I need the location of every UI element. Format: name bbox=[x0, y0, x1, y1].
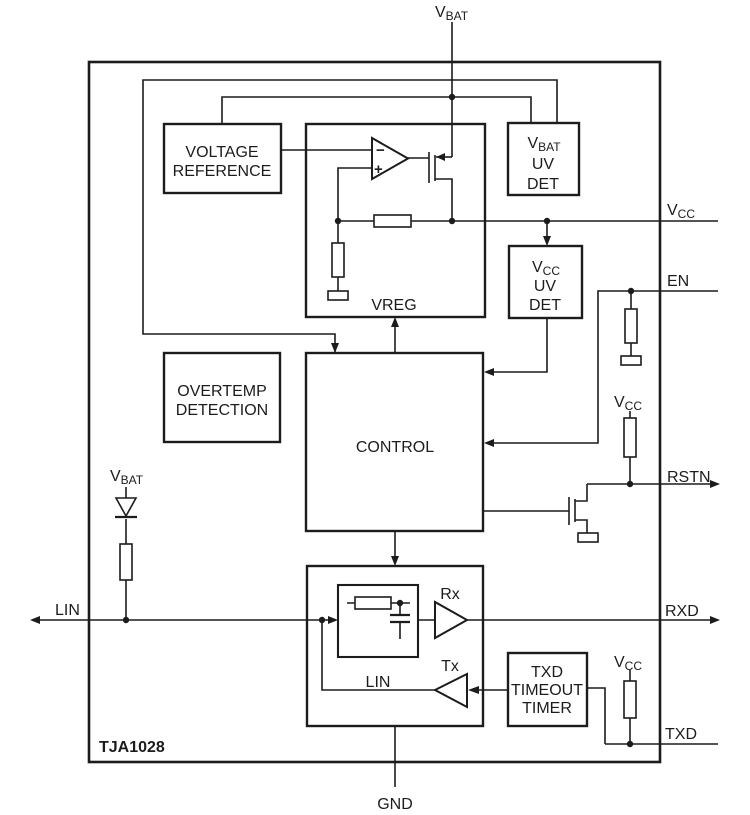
txd-timer-label-3: TIMER bbox=[522, 700, 572, 717]
lin-pullup-resistor bbox=[120, 544, 132, 580]
txd-pullup-vcc-label: VCC bbox=[614, 654, 642, 673]
junction-txd bbox=[627, 741, 633, 747]
vreg-feedback-resistor bbox=[374, 215, 411, 227]
junction-rstn bbox=[627, 481, 633, 487]
en-pin-label: EN bbox=[667, 273, 689, 290]
txd-timer-label-2: TIMEOUT bbox=[511, 682, 583, 699]
junction-lin-tx bbox=[319, 617, 325, 623]
gnd-pin-label: GND bbox=[377, 796, 413, 813]
rstn-fet-drain bbox=[575, 484, 587, 501]
rstn-transistor bbox=[569, 484, 598, 542]
arrow-en-into-control-icon bbox=[484, 439, 494, 447]
diode-icon bbox=[116, 498, 136, 516]
rstn-pin-label: RSTN bbox=[667, 469, 711, 486]
vcc-pin-label: VCC bbox=[667, 202, 695, 221]
overtemp-label-1: OVERTEMP bbox=[177, 383, 267, 400]
txd-pin-label: TXD bbox=[665, 726, 697, 743]
arrow-control-into-lin-icon bbox=[391, 556, 399, 566]
arrow-into-control-top-icon bbox=[331, 343, 339, 353]
junction-vcc-source bbox=[449, 218, 455, 224]
rx-label: Rx bbox=[440, 586, 460, 603]
arrow-into-vcc-uvdet-icon bbox=[543, 236, 551, 246]
vcc-uv-det-label-2: UV bbox=[534, 278, 557, 295]
rxd-pin-label: RXD bbox=[665, 603, 699, 620]
vreg-label: VREG bbox=[371, 297, 416, 314]
diagram-canvas: − + bbox=[0, 0, 750, 815]
vbat-uv-det-label-2: UV bbox=[532, 156, 555, 173]
block-diagram-tja1028: − + bbox=[0, 0, 750, 815]
wire-vcc-uvdet-to-control bbox=[493, 318, 547, 372]
junction-vbat bbox=[449, 94, 455, 100]
lin-stage-label: LIN bbox=[366, 674, 391, 691]
en-ground-icon bbox=[621, 356, 641, 365]
junction-filter bbox=[397, 600, 403, 606]
voltage-reference-label-1: VOLTAGE bbox=[185, 144, 258, 161]
control-label: CONTROL bbox=[356, 439, 434, 456]
opamp-minus: − bbox=[376, 142, 385, 159]
txd-pullup-resistor bbox=[624, 681, 636, 718]
rstn-pullup-vcc-label: VCC bbox=[614, 394, 642, 413]
vbat-pin-label: VBAT bbox=[435, 4, 469, 23]
overtemp-label-2: DETECTION bbox=[176, 402, 268, 419]
vcc-uv-det-label-3: DET bbox=[529, 297, 561, 314]
en-pulldown-resistor bbox=[625, 309, 637, 343]
tx-label: Tx bbox=[441, 658, 459, 675]
vreg-divider-resistor bbox=[332, 243, 344, 277]
lin-pullup-diode bbox=[115, 498, 137, 517]
opamp-plus: + bbox=[374, 161, 383, 178]
rstn-fet-source bbox=[575, 520, 587, 533]
arrow-rstn-pin-icon bbox=[710, 480, 720, 488]
junction-lin-pullup bbox=[123, 617, 129, 623]
filter-resistor bbox=[355, 597, 391, 609]
arrow-rxd-pin-icon bbox=[710, 616, 720, 624]
arrow-into-vreg-icon bbox=[391, 317, 399, 327]
rstn-pullup-resistor bbox=[624, 418, 636, 457]
lin-pullup-vbat-label: VBAT bbox=[110, 468, 144, 487]
vreg-ground-icon bbox=[328, 291, 348, 300]
junction-vcc-uvdet bbox=[544, 218, 550, 224]
chip-name-label: TJA1028 bbox=[99, 739, 165, 756]
lin-pin-label: LIN bbox=[55, 602, 80, 619]
voltage-reference-label-2: REFERENCE bbox=[173, 163, 272, 180]
junction-en bbox=[628, 288, 634, 294]
arrow-uvdet-into-control-icon bbox=[484, 368, 494, 376]
txd-timer-label-1: TXD bbox=[531, 664, 563, 681]
arrow-lin-pin-icon bbox=[30, 616, 40, 624]
wire-txd bbox=[587, 670, 718, 744]
rstn-ground-icon bbox=[578, 533, 598, 542]
vbat-uv-det-label-3: DET bbox=[527, 176, 559, 193]
junction-divider bbox=[335, 218, 341, 224]
